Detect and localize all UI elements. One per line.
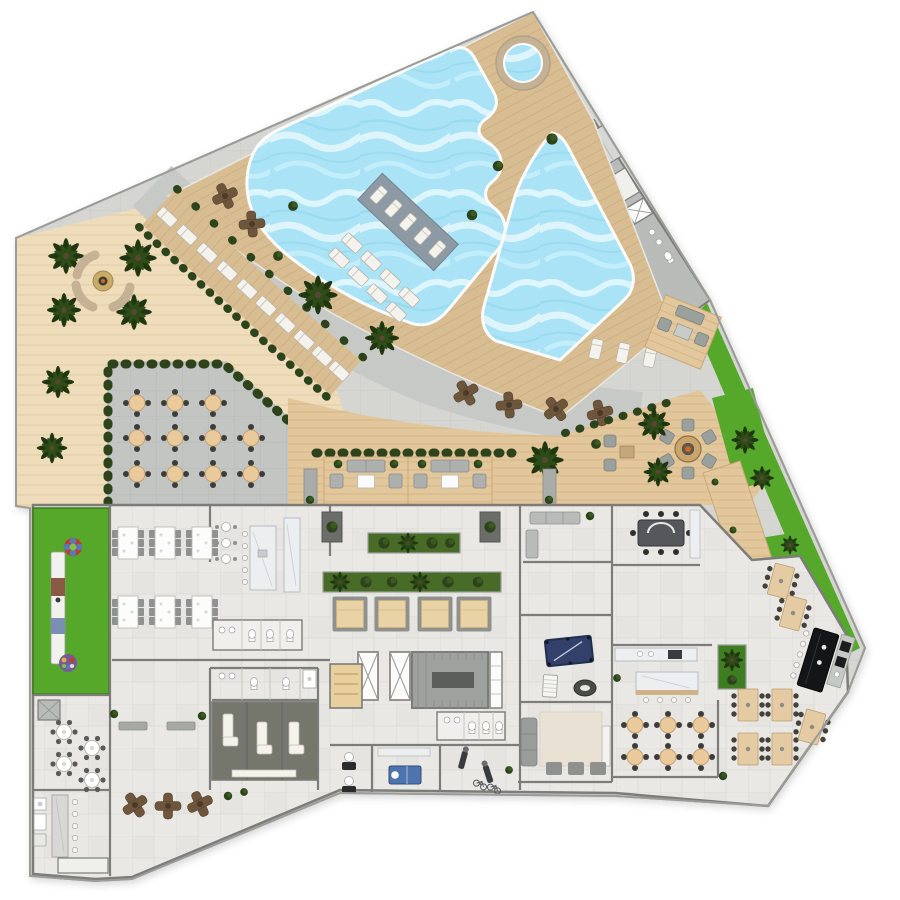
daybed	[457, 597, 492, 632]
bench	[526, 530, 538, 558]
sink	[656, 239, 662, 245]
ottoman	[546, 762, 562, 775]
banquet-table	[112, 527, 144, 559]
restrooms-north	[213, 620, 302, 650]
interior-garden	[718, 645, 746, 689]
fire-pit-chair	[682, 419, 694, 431]
sofa	[521, 718, 537, 766]
tree	[750, 466, 774, 490]
back-room	[58, 858, 108, 873]
tree	[731, 426, 758, 453]
tree	[638, 408, 670, 440]
palm-tree	[42, 366, 74, 398]
play-structure	[51, 552, 65, 664]
rug	[540, 712, 602, 766]
bench	[167, 722, 195, 730]
tv-console	[602, 726, 610, 766]
interior	[33, 505, 855, 879]
restrooms-central	[437, 712, 505, 740]
cabana	[408, 457, 492, 507]
sofa	[530, 512, 580, 524]
cabana	[324, 457, 408, 507]
ottoman	[568, 762, 584, 775]
tree	[644, 458, 673, 487]
banquet-table	[112, 596, 144, 628]
daybed	[375, 597, 410, 632]
palm-tree	[298, 275, 337, 314]
banquet-table	[186, 527, 218, 559]
bench	[119, 722, 147, 730]
floor-plan-canvas	[0, 0, 900, 900]
foosball-table	[542, 675, 557, 698]
daybed	[333, 597, 368, 632]
sauna	[330, 664, 362, 708]
tree	[781, 536, 800, 555]
cabinet	[690, 510, 700, 558]
floor-plan	[0, 0, 900, 900]
daybed	[418, 597, 453, 632]
sink	[649, 229, 655, 235]
billiards-table	[545, 635, 594, 667]
ottoman	[590, 762, 606, 775]
circular-spa	[496, 36, 550, 90]
fire-pit-chair	[682, 467, 694, 479]
playground-lawn	[33, 508, 109, 694]
appliance	[34, 834, 46, 846]
card-table	[574, 680, 596, 696]
spa-lounge	[212, 702, 318, 780]
kitchen-counter	[615, 648, 697, 661]
banquet-table	[149, 527, 181, 559]
palm-tree	[365, 321, 399, 355]
palm-tree	[37, 433, 68, 464]
mosaic-flower	[59, 654, 77, 672]
banquet-table	[149, 596, 181, 628]
palm-tree	[119, 239, 156, 276]
towel-shelf	[232, 770, 296, 777]
massage-table	[389, 766, 421, 784]
fridge	[34, 814, 46, 830]
